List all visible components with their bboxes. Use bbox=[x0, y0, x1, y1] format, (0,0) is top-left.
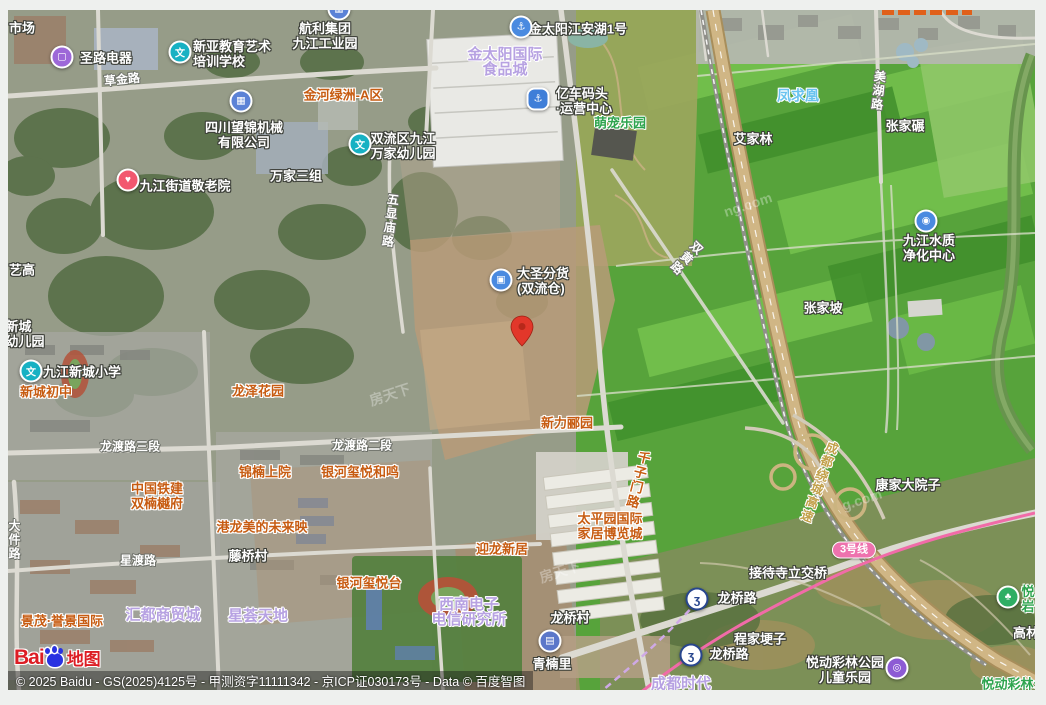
label-huidu-trade-city[interactable]: 汇都商贸城 bbox=[125, 608, 200, 623]
label-hangli-industrial-park[interactable]: 航利集团九江工业园 bbox=[292, 21, 357, 51]
copyright-bar: © 2025 Baidu - GS(2025)4125号 - 甲测资字11111… bbox=[8, 671, 533, 690]
poi-jiujiang-nursing-home[interactable]: 九江街道敬老院 bbox=[139, 179, 230, 194]
label-yinhe-xiyue-tai[interactable]: 银河玺悦台 bbox=[336, 576, 401, 591]
label-xincheng-middle-school[interactable]: 新城初中 bbox=[20, 385, 72, 400]
pin-shape bbox=[511, 316, 533, 346]
badge-metro-line-3[interactable]: 3号线 bbox=[832, 542, 876, 559]
label-jinnan-shangyuan[interactable]: 锦楠上院 bbox=[239, 465, 291, 480]
poi-qingnanli[interactable]: 青楠里 bbox=[532, 657, 571, 672]
map-canvas[interactable]: 市场圣路电器▢新亚教育艺术培训学校文航利集团九江工业园▦金太阳江安湖1号⚓金太阳… bbox=[8, 10, 1035, 690]
label-zhangjiapo[interactable]: 张家坡 bbox=[803, 301, 842, 316]
school-icon[interactable]: 文 bbox=[20, 360, 43, 383]
poi-longqiaolu-station-north[interactable]: 龙桥路 bbox=[717, 591, 756, 606]
poi-yueyan[interactable]: 悦岩 bbox=[1021, 584, 1034, 614]
label-chengjia-gengzi[interactable]: 程家埂子 bbox=[734, 632, 786, 647]
water-drop-icon[interactable]: ◉ bbox=[915, 210, 938, 233]
label-aijialin[interactable]: 艾家林 bbox=[733, 132, 772, 147]
label-jiedaisi-interchange[interactable]: 接待寺立交桥 bbox=[749, 566, 827, 581]
road-chengdu-raocheng-gaosu[interactable]: 成都绕城高速 bbox=[797, 439, 840, 526]
road-caojin-lu[interactable]: 草金路 bbox=[103, 71, 140, 90]
label-taipingyuan-expo[interactable]: 太平园国际家居博览城 bbox=[577, 511, 642, 541]
anchor-icon[interactable]: ⚓ bbox=[510, 16, 533, 39]
baidu-paw-icon bbox=[47, 653, 63, 667]
label-xinli-liyuan[interactable]: 新力郦园 bbox=[541, 416, 593, 431]
metro-logo-icon[interactable]: ʒ bbox=[686, 588, 709, 611]
baidu-logo-map-word: 地图 bbox=[67, 645, 101, 670]
road-dajian-lu[interactable]: 大件路 bbox=[8, 519, 21, 561]
label-ganglong-meidi[interactable]: 港龙美的未来映 bbox=[216, 520, 307, 535]
poi-yiche-wharf[interactable]: 亿车码头·运营中心 bbox=[556, 86, 612, 116]
road-longdu-lu-2[interactable]: 龙渡路二段 bbox=[332, 439, 392, 454]
watermark: 房天下 bbox=[538, 558, 583, 585]
label-southwest-electronics[interactable]: 西南电子电信研究所 bbox=[431, 597, 506, 627]
road-xingdu-lu[interactable]: 星渡路 bbox=[120, 554, 156, 569]
label-jingmao-yujing[interactable]: 景茂·誉景国际 bbox=[21, 614, 103, 629]
playground-icon[interactable]: ◎ bbox=[886, 657, 909, 680]
label-xincheng-kindergarten[interactable]: 新城幼儿园 bbox=[8, 319, 45, 349]
poi-dasheng-warehouse[interactable]: 大圣分货(双流仓) bbox=[517, 266, 569, 296]
poi-shenglu-electric[interactable]: 圣路电器 bbox=[80, 51, 132, 66]
label-market[interactable]: 市场 bbox=[9, 21, 35, 36]
baidu-logo: Bai 地图 bbox=[14, 645, 101, 670]
poi-longqiaolu-station-south[interactable]: 龙桥路 bbox=[709, 647, 748, 662]
map-pin[interactable] bbox=[510, 315, 534, 352]
label-wanjia-sanzu[interactable]: 万家三组 bbox=[270, 169, 322, 184]
poi-wanjia-kindergarten[interactable]: 双流区九江万家幼儿园 bbox=[370, 131, 435, 161]
factory-icon[interactable]: ▦ bbox=[230, 90, 253, 113]
label-xinghui-tiandi[interactable]: 星荟天地 bbox=[228, 609, 288, 624]
label-fengqiuhuang[interactable]: 凤求凰 bbox=[777, 89, 819, 104]
label-jintaiyang-food-city[interactable]: 金太阳国际食品城 bbox=[467, 47, 542, 77]
label-gaolin[interactable]: 高林 bbox=[1013, 626, 1035, 641]
watermark: 房天下 bbox=[368, 381, 413, 408]
poi-jiujiang-water-plant[interactable]: 九江水质净化中心 bbox=[903, 233, 955, 263]
shopping-bag-icon[interactable]: ▢ bbox=[51, 46, 74, 69]
poi-yuedong-cailin-playground[interactable]: 悦动彩林公园儿童乐园 bbox=[806, 655, 884, 685]
metro-logo-icon[interactable]: ʒ bbox=[680, 644, 703, 667]
label-zhongguo-tiejian-shuangnan[interactable]: 中国铁建双楠樾府 bbox=[131, 481, 183, 511]
label-yinhe-xiyue-heming[interactable]: 银河玺悦和鸣 bbox=[321, 465, 399, 480]
poi-jintaiyang-jiangan-lake[interactable]: 金太阳江安湖1号 bbox=[529, 22, 627, 37]
truck-icon[interactable]: ▣ bbox=[490, 269, 513, 292]
poi-xinya-art-school[interactable]: 新亚教育艺术培训学校 bbox=[193, 39, 271, 69]
tree-icon[interactable]: ♣ bbox=[997, 586, 1020, 609]
road-qianzimen-lu[interactable]: 千子门路 bbox=[623, 449, 651, 511]
label-tengqiao-village[interactable]: 藤桥村 bbox=[228, 549, 267, 564]
road-meihu-lu[interactable]: 美湖路 bbox=[869, 69, 887, 112]
poi-sichuan-wangjin-machinery[interactable]: 四川望锦机械有限公司 bbox=[205, 120, 283, 150]
label-jinhe-lvzhou-a[interactable]: 金河绿洲-A区 bbox=[304, 88, 383, 103]
poi-jiujiang-xincheng-primary[interactable]: 九江新城小学 bbox=[43, 365, 121, 380]
factory-icon[interactable]: ▦ bbox=[328, 10, 351, 21]
label-yinglong-xinju[interactable]: 迎龙新居 bbox=[476, 542, 528, 557]
watermark: ng.com bbox=[722, 190, 774, 220]
baidu-logo-text: Bai bbox=[14, 646, 44, 670]
label-zhangjia-nian[interactable]: 张家碾 bbox=[885, 119, 924, 134]
label-kangjia-dayuanzi[interactable]: 康家大院子 bbox=[875, 478, 940, 493]
label-yigao[interactable]: 艺高 bbox=[9, 263, 35, 278]
school-icon[interactable]: 文 bbox=[169, 41, 192, 64]
label-yuedong-cailin-park[interactable]: 悦动彩林公 bbox=[981, 677, 1035, 691]
road-wuxianmiao-lu[interactable]: 五显庙路 bbox=[380, 192, 401, 249]
building-icon[interactable]: ▤ bbox=[539, 630, 562, 653]
label-longqiao-village[interactable]: 龙桥村 bbox=[550, 611, 589, 626]
baidu-map-viewport: 市场圣路电器▢新亚教育艺术培训学校文航利集团九江工业园▦金太阳江安湖1号⚓金太阳… bbox=[0, 0, 1046, 705]
road-shuanghuang-lu[interactable]: 双黄路 bbox=[666, 238, 705, 278]
anchor-icon[interactable]: ⚓ bbox=[527, 88, 550, 111]
school-icon[interactable]: 文 bbox=[349, 133, 372, 156]
label-longze-garden[interactable]: 龙泽花园 bbox=[232, 384, 284, 399]
road-longdu-lu-3[interactable]: 龙渡路三段 bbox=[100, 440, 160, 455]
heart-care-icon[interactable]: ♥ bbox=[117, 169, 140, 192]
label-chengdu-shidai[interactable]: 成都时代 bbox=[651, 677, 711, 691]
label-mengchong-park[interactable]: 萌宠乐园 bbox=[594, 116, 646, 131]
